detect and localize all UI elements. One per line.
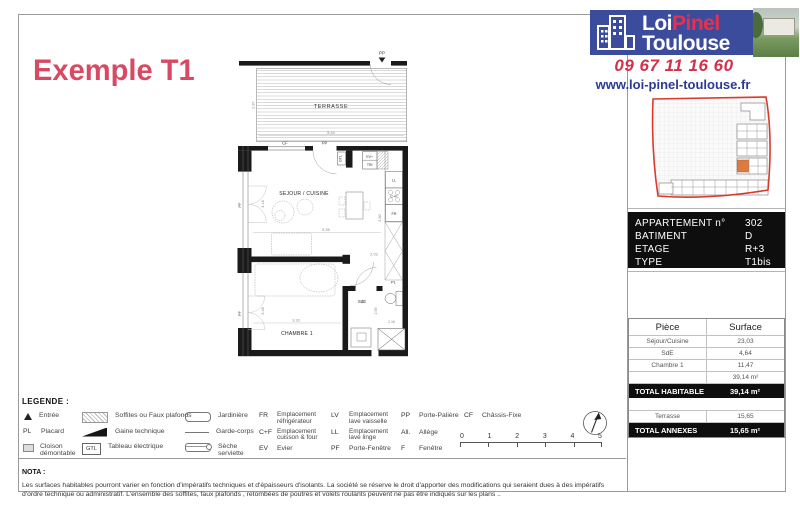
table-row: Séjour/Cuisine 23,03: [629, 336, 784, 348]
dim-chambre-width: 3.33: [292, 318, 299, 322]
scale-tick: 2: [515, 433, 519, 440]
legend-col-3: Jardinière Garde-corps Sèche serviette: [185, 412, 257, 459]
info-value: R+3: [745, 243, 765, 256]
legend-item-jardiniere: Jardinière: [185, 412, 257, 428]
cell-surface: 15,65: [707, 413, 784, 420]
info-row-apartment: APPARTEMENT n° 302: [635, 217, 778, 230]
legend-label: Placard: [41, 428, 64, 435]
table-spacer: [629, 398, 784, 410]
legend-item-chassis-fixe: CF Châssis-Fixe: [464, 412, 544, 428]
legend-label: Garde-corps: [216, 428, 254, 435]
table-row-subtotal: 39,14 m²: [629, 372, 784, 384]
legend-label: Emplacement lave linge: [349, 429, 401, 443]
svg-text:FR: FR: [391, 212, 396, 216]
total-annexes-row: TOTAL ANNEXES 15,65 m²: [629, 423, 784, 437]
sde-label: SdE: [358, 299, 366, 304]
logo: LoiPinel Toulouse: [590, 10, 755, 55]
info-bottom-rule: [628, 271, 785, 272]
gaine-column: [385, 222, 403, 280]
table-row: SdE 4,64: [629, 348, 784, 360]
cloison-square-icon: [23, 444, 34, 452]
svg-text:CF: CF: [282, 140, 288, 145]
north-compass-icon: [580, 408, 610, 438]
info-label: BATIMENT: [635, 230, 745, 243]
cell-surface: 39,14 m²: [707, 374, 784, 381]
legend-item-cf-four: C+F Emplacement cuisson & four: [259, 429, 329, 446]
highlighted-apartment-unit: [738, 160, 749, 172]
website-link[interactable]: www.loi-pinel-toulouse.fr: [582, 77, 764, 92]
legend-abbr: LV: [331, 412, 346, 419]
phone-number: 09 67 11 16 60: [588, 56, 760, 76]
legend-col-1: Entrée PL Placard Cloison démontable: [23, 412, 85, 459]
seche-serviette-icon: [185, 443, 211, 452]
svg-text:PP: PP: [322, 140, 328, 145]
terrasse: TERRASSE 5.44 2.87: [252, 68, 407, 141]
legend-label: Allège: [419, 429, 438, 436]
legend-label: Evier: [277, 445, 293, 452]
dim-sejour-width: 5.55: [322, 228, 329, 232]
scale-tick: 0: [460, 433, 464, 440]
legend-col-7: CF Châssis-Fixe: [464, 412, 544, 428]
info-label: ETAGE: [635, 243, 745, 256]
scale-line: [460, 442, 602, 449]
nota-title: NOTA :: [22, 469, 45, 476]
legend-col-2: Soffites ou Faux plafonds Gaine techniqu…: [82, 412, 192, 459]
legend-label: Gaine technique: [115, 428, 165, 435]
legend-label: Cloison démontable: [40, 443, 80, 458]
col-header-piece: Pièce: [629, 319, 707, 335]
pf-sejour-label: PF: [238, 202, 242, 208]
legend-item-cloison: Cloison démontable: [23, 443, 85, 459]
legend-item-seche: Sèche serviette: [185, 443, 257, 459]
chambre-furniture: [255, 264, 338, 296]
legend-abbr: C+F: [259, 429, 274, 436]
cell-surface: 23,03: [707, 338, 784, 345]
gtl-box-icon: GTL: [82, 443, 101, 455]
legend-label: Entrée: [39, 412, 59, 419]
legend-item-fr: FR Emplacement réfrigérateur: [259, 412, 329, 429]
legend-label: Jardinière: [218, 412, 248, 419]
chambre-label: CHAMBRE 1: [281, 331, 313, 337]
legend-col-6: PP Porte-Palière All. Allège F Fenêtre: [401, 412, 459, 461]
info-label: APPARTEMENT n°: [635, 217, 745, 230]
gtl-box: GTL: [338, 152, 346, 165]
scale-tick: 4: [570, 433, 574, 440]
surface-table: Pièce Surface Séjour/Cuisine 23,03 SdE 4…: [628, 318, 785, 438]
info-row-type: TYPE T1bis: [635, 256, 778, 269]
table-row: Chambre 1 11,47: [629, 360, 784, 372]
legend-item-allege: All. Allège: [401, 429, 459, 446]
legend-label: Porte-Fenêtre: [349, 445, 391, 452]
logo-toulouse: Toulouse: [642, 33, 730, 54]
info-top-rule: [628, 208, 785, 209]
legend-col-5: LV Emplacement lave vaisselle LL Emplace…: [331, 412, 401, 461]
cell-piece: Terrasse: [629, 411, 707, 422]
svg-text:LL: LL: [392, 179, 396, 183]
scale-tick: 3: [543, 433, 547, 440]
legend-label: Emplacement cuisson & four: [277, 429, 329, 443]
svg-text:C+F: C+F: [390, 195, 398, 199]
legend-label: Fenêtre: [419, 445, 442, 452]
legend-label: Porte-Palière: [419, 412, 459, 419]
entree-arrow-icon: [379, 58, 386, 63]
info-value: T1bis: [745, 256, 771, 269]
legend-title: LEGENDE :: [22, 397, 69, 406]
logo-building-icon: [595, 14, 639, 51]
legend-abbr: CF: [464, 412, 479, 419]
soffite-hatch-box: [377, 152, 388, 170]
legend-label: Emplacement lave vaisselle: [349, 412, 401, 426]
cell-piece: [629, 372, 707, 383]
dim-sde-width: 2.16: [388, 320, 395, 324]
legend-abbr: PP: [401, 412, 416, 419]
soffite-square: [378, 329, 405, 351]
total-annexes-label: TOTAL ANNEXES: [629, 426, 706, 435]
sejour-label: SEJOUR / CUISINE: [279, 191, 329, 197]
svg-text:EV+: EV+: [366, 155, 373, 159]
dim-sejour-height: 4.80: [378, 214, 382, 221]
ev-tri-box: EV+ TRI: [363, 152, 378, 170]
info-row-batiment: BATIMENT D: [635, 230, 778, 243]
site-locator-map: [646, 94, 788, 206]
legend-item-placard: PL Placard: [23, 428, 85, 444]
dim-terrasse-depth: 2.87: [252, 101, 256, 108]
cell-surface: 11,47: [707, 362, 784, 369]
legend-abbr: EV: [259, 445, 274, 452]
total-habitable-label: TOTAL HABITABLE: [629, 387, 706, 396]
legend-abbr: PF: [331, 445, 346, 452]
legend-item-ll: LL Emplacement lave linge: [331, 429, 401, 446]
nota-text: Les surfaces habitables pourront varier …: [22, 482, 622, 500]
dim-terrasse-width: 5.44: [327, 131, 334, 135]
svg-text:PP: PP: [379, 51, 385, 56]
pf-chambre-label: PF: [238, 310, 242, 316]
legend-label: Soffites ou Faux plafonds: [115, 412, 192, 419]
legend-item-gtl: GTL Tableau électrique: [82, 443, 192, 459]
total-habitable-row: TOTAL HABITABLE 39,14 m²: [629, 384, 784, 398]
svg-text:GTL: GTL: [339, 155, 343, 162]
info-row-etage: ETAGE R+3: [635, 243, 778, 256]
terrasse-label: TERRASSE: [314, 104, 348, 110]
legend-abbr: F: [401, 445, 416, 452]
dim-entree: 2.03: [370, 252, 377, 256]
entree-triangle-icon: [24, 413, 32, 420]
col-header-surface: Surface: [707, 322, 784, 333]
dim-sde-height: 2.59: [374, 308, 378, 315]
garde-corps-icon: [185, 432, 209, 433]
legend-label: Tableau électrique: [108, 443, 163, 450]
sde-door-arc: [356, 268, 377, 289]
info-value: D: [745, 230, 753, 243]
legend-item-pp: PP Porte-Palière: [401, 412, 459, 429]
gaine-wedge-icon: [82, 428, 107, 437]
info-label: TYPE: [635, 256, 745, 269]
soffite-hatch-icon: [82, 412, 108, 423]
cell-piece: Séjour/Cuisine: [629, 336, 707, 347]
logo-text-line1: LoiPinel: [642, 13, 720, 34]
floorplan-sheet: { "header": { "title": "Exemple T1", "lo…: [0, 0, 800, 529]
walls: [238, 146, 409, 356]
legend-abbr: PL: [23, 428, 38, 435]
placard-label: PL: [391, 280, 397, 285]
legend-item-entree: Entrée: [23, 412, 85, 428]
scale-tick: 1: [488, 433, 492, 440]
surface-table-header: Pièce Surface: [629, 319, 784, 336]
page-title: Exemple T1: [33, 54, 195, 88]
total-annexes-value: 15,65 m²: [706, 426, 784, 435]
terrasse-door-label: PP: [379, 51, 386, 63]
pp-entry-door: PP: [313, 140, 337, 174]
floor-plan: TERRASSE 5.44 2.87 PP: [225, 40, 435, 380]
info-value: 302: [745, 217, 763, 230]
jardiniere-icon: [185, 412, 211, 422]
dim-sejour-left: 3.18: [261, 200, 265, 207]
building-photo: [753, 8, 799, 57]
total-habitable-value: 39,14 m²: [706, 387, 784, 396]
legend-abbr: LL: [331, 429, 346, 436]
cell-piece: Chambre 1: [629, 360, 707, 371]
legend-item-gaine: Gaine technique: [82, 428, 192, 444]
legend-item-lv: LV Emplacement lave vaisselle: [331, 412, 401, 429]
sejour-furniture: [272, 192, 371, 255]
legend-label: Sèche serviette: [218, 443, 257, 458]
legend-abbr: FR: [259, 412, 274, 419]
cell-surface: 4,64: [707, 350, 784, 357]
table-row-terrasse: Terrasse 15,65: [629, 410, 784, 423]
svg-text:TRI: TRI: [367, 163, 373, 167]
apartment-info-panel: APPARTEMENT n° 302 BATIMENT D ETAGE R+3 …: [628, 212, 785, 268]
legend-col-4: FR Emplacement réfrigérateur C+F Emplace…: [259, 412, 329, 461]
legend-label: Châssis-Fixe: [482, 412, 521, 419]
legend-item-soffites: Soffites ou Faux plafonds: [82, 412, 192, 428]
dim-chambre-height: 3.48: [261, 307, 265, 314]
legend-label: Emplacement réfrigérateur: [277, 412, 329, 426]
nota-section: NOTA : Les surfaces habitables pourront …: [18, 458, 626, 502]
photo-building: [763, 18, 795, 36]
legend-item-gardecorps: Garde-corps: [185, 428, 257, 444]
cell-piece: SdE: [629, 348, 707, 359]
legend-abbr: All.: [401, 429, 416, 436]
photo-tree: [753, 12, 763, 38]
